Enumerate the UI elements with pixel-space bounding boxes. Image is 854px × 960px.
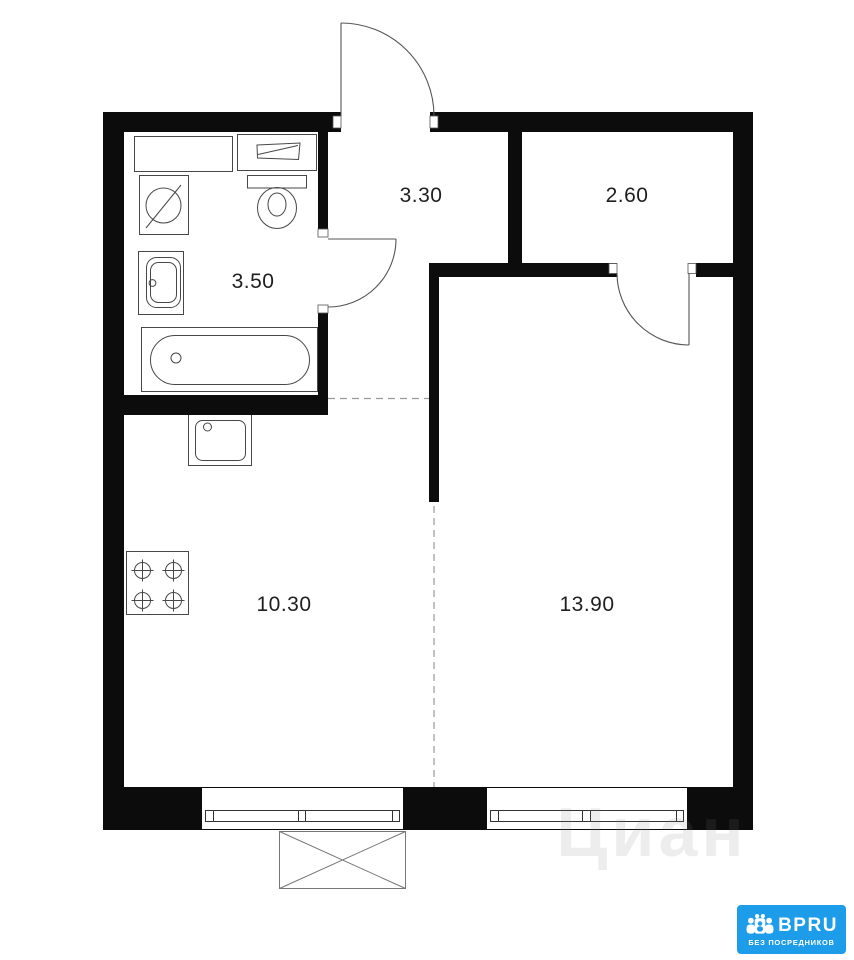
washing-machine-icon [140, 176, 189, 235]
entrance-door [341, 23, 434, 116]
wall-partition [429, 263, 439, 502]
wall-top-left [103, 112, 341, 132]
people-icon [745, 913, 775, 938]
burner [163, 560, 185, 582]
bpru-logo-title: BPRU [778, 916, 838, 935]
toilet-icon [248, 176, 307, 229]
room-label-wardrobe: 2.60 [606, 184, 649, 207]
bathtub-icon [142, 328, 318, 392]
dashed-lines [328, 399, 434, 788]
fixtures [127, 135, 318, 615]
room-label-kitchen: 10.30 [256, 593, 311, 616]
wall-bottom-middle [403, 787, 487, 830]
window-kitchen [202, 788, 403, 830]
bpru-logo-subtitle: БЕЗ ПОСРЕДНИКОВ [748, 939, 834, 947]
floor-plan: 3.50 3.30 2.60 10.30 13.90 Циан [0, 0, 854, 960]
balcony-box [280, 832, 406, 889]
burner [163, 590, 185, 612]
floor-plan-page: 3.50 3.30 2.60 10.30 13.90 Циан BPRU [0, 0, 854, 960]
wall-left [103, 112, 124, 830]
burner [132, 590, 154, 612]
room-label-bathroom: 3.50 [232, 270, 275, 293]
bpru-logo: BPRU БЕЗ ПОСРЕДНИКОВ [737, 905, 846, 954]
wall-bathroom-bottom [103, 395, 328, 415]
wall-living-top-right [696, 263, 733, 277]
sink-icon [139, 252, 184, 315]
room-label-hallway: 3.30 [400, 184, 443, 207]
wall-living-top-left [429, 263, 617, 277]
site-watermark: Циан [556, 793, 747, 871]
bathroom-shelf [135, 137, 233, 172]
burner [132, 560, 154, 582]
washbasin-icon [238, 135, 317, 171]
room-label-living-room: 13.90 [559, 593, 614, 616]
stove-icon [127, 552, 189, 615]
door-jambs [318, 116, 696, 313]
wardrobe-door [617, 273, 689, 345]
walls [103, 112, 753, 830]
bpru-logo-row: BPRU [745, 913, 838, 938]
wall-hallway-wardrobe [508, 132, 522, 277]
wall-bottom-left [103, 787, 202, 830]
wall-top-right [430, 112, 753, 132]
wall-bathroom-right-upper [318, 132, 328, 237]
wall-right [733, 112, 753, 830]
bathroom-door [328, 239, 396, 307]
